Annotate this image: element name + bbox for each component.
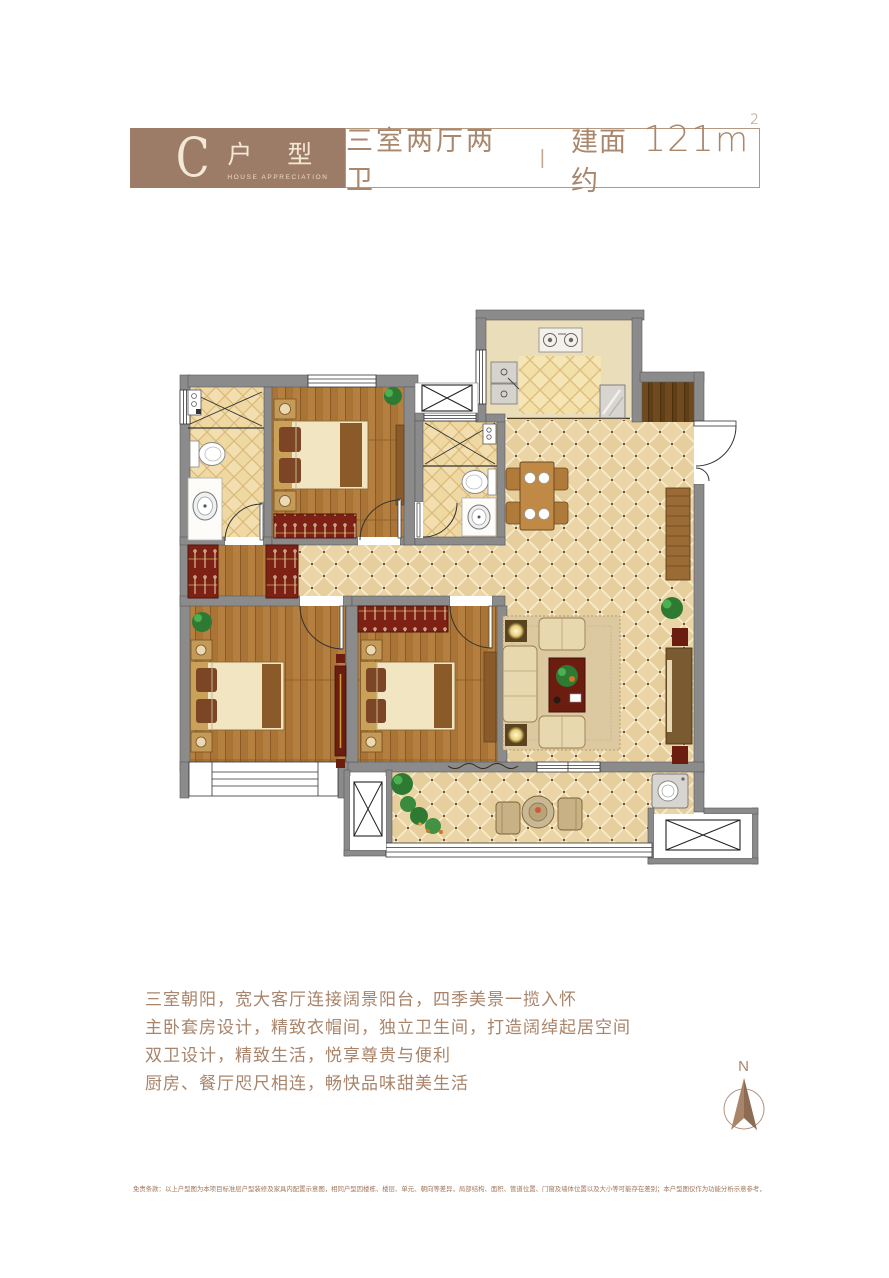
bed	[191, 662, 284, 730]
bath1-door-leaf	[260, 503, 263, 540]
hallway-floor	[298, 545, 507, 596]
closet-wardrobe	[266, 545, 298, 598]
plant-highlight	[385, 389, 393, 397]
dining-table	[520, 462, 554, 530]
plant-icon	[410, 807, 428, 825]
toilet-icon	[462, 469, 496, 495]
bath-sink-icon	[462, 498, 496, 536]
spec-divider: |	[540, 147, 545, 170]
bedroom2-bay-window	[189, 762, 338, 796]
closet-wardrobe	[188, 545, 218, 598]
tv-cabinet	[666, 628, 692, 764]
bedroom2-door-leaf	[340, 606, 343, 649]
area-spec: 建面约121m2	[571, 119, 759, 198]
bath2-door-leaf	[417, 503, 420, 537]
shoe-cabinet	[666, 488, 690, 580]
master-door-opening	[358, 537, 400, 545]
kitchen-floor	[519, 356, 601, 414]
floor-plan	[170, 300, 764, 878]
stove-icon	[539, 328, 582, 352]
ac-window	[424, 413, 476, 421]
bedroom3-door-opening	[450, 596, 492, 606]
bench	[396, 425, 404, 505]
plant-icon	[391, 773, 413, 795]
nightstand	[274, 491, 296, 511]
type-header-box: C 户 型 HOUSE APPRECIATION	[130, 128, 345, 188]
description-block: 三室朝阳，宽大客厅连接阔景阳台，四季美景一揽入怀 主卧套房设计，精致衣帽间，独立…	[145, 986, 631, 1098]
area-number: 121	[643, 119, 715, 160]
area-unit-sup: 2	[750, 112, 760, 128]
shower-fixture-icon	[483, 424, 496, 444]
description-line: 主卧套房设计，精致衣帽间，独立卫生间，打造阔绰起居空间	[145, 1014, 631, 1042]
plant-icon	[192, 612, 212, 632]
toilet-icon	[190, 441, 225, 467]
kitchen-sink-icon	[491, 362, 519, 404]
refrigerator-icon	[600, 385, 625, 418]
speaker-icon	[672, 746, 688, 764]
foyer-floor	[642, 382, 694, 422]
area-unit-base: m	[715, 120, 749, 160]
bedroom3-wardrobe	[358, 606, 448, 632]
type-name: 户 型	[227, 135, 328, 171]
compass-north-label: N	[714, 1058, 774, 1075]
bed	[361, 662, 455, 730]
floorplan-poster: C 户 型 HOUSE APPRECIATION 三室两厅两卫 | 建面约121…	[0, 0, 889, 1278]
master-bed	[274, 421, 368, 489]
description-line: 双卫设计，精致生活，悦享尊贵与便利	[145, 1042, 631, 1070]
master-door-leaf	[398, 499, 401, 538]
description-line: 厨房、餐厅咫尺相连，畅快品味甜美生活	[145, 1070, 631, 1098]
type-letter: C	[176, 131, 210, 185]
shower-fixture-icon	[188, 390, 201, 415]
entry-opening	[694, 426, 704, 484]
type-subtitle: HOUSE APPRECIATION	[227, 174, 328, 181]
layout-spec: 三室两厅两卫	[346, 119, 514, 197]
washing-machine-icon	[652, 774, 688, 808]
master-wardrobe	[274, 514, 356, 538]
plant-icon	[661, 597, 683, 619]
entry-door-leaf	[694, 421, 736, 426]
tv-panel	[335, 654, 346, 768]
bath-sink-icon	[188, 478, 222, 540]
type-text: 户 型 HOUSE APPRECIATION	[227, 135, 328, 181]
spec-header-box: 三室两厅两卫 | 建面约121m2	[345, 128, 760, 188]
master-window	[308, 375, 376, 387]
balcony-chair	[558, 798, 582, 830]
speaker-icon	[672, 628, 688, 646]
description-line: 三室朝阳，宽大客厅连接阔景阳台，四季美景一揽入怀	[145, 986, 631, 1014]
area-unit: m2	[715, 120, 759, 160]
balcony-slider	[537, 762, 600, 772]
desk	[484, 652, 496, 742]
compass: N	[714, 1058, 774, 1139]
bath1-door-opening	[225, 537, 263, 545]
disclaimer-text: 免责条款：以上户型图为本项目标准层户型装修及家具内配置示意图，相同户型因楼栋、楼…	[133, 1185, 763, 1194]
compass-icon	[714, 1076, 774, 1134]
nightstand	[274, 399, 296, 419]
bedroom2-door-opening	[300, 596, 343, 606]
balcony-chair	[496, 802, 520, 834]
bedroom3-door-leaf	[489, 606, 492, 648]
area-prefix: 建面约	[571, 120, 641, 198]
balcony-railing	[386, 843, 652, 857]
coffee-table	[549, 658, 585, 712]
